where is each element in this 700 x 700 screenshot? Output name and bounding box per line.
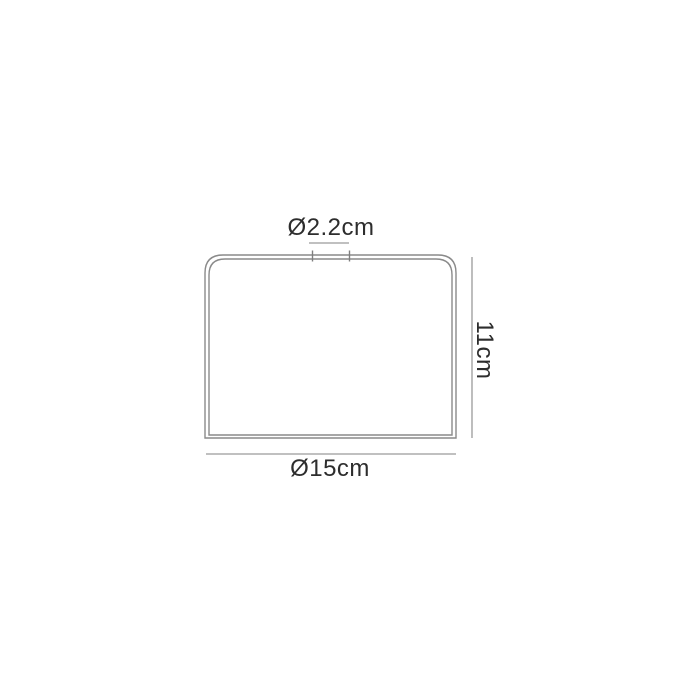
shade-outline-inner bbox=[209, 259, 452, 435]
top-fitting-diameter-label: Ø2.2cm bbox=[287, 215, 374, 241]
shade-drawing bbox=[0, 0, 700, 700]
dimension-diagram: Ø2.2cm 11cm Ø15cm bbox=[0, 0, 700, 700]
shade-outline-outer bbox=[205, 255, 456, 438]
height-label: 11cm bbox=[471, 321, 497, 380]
base-diameter-label: Ø15cm bbox=[290, 456, 370, 482]
